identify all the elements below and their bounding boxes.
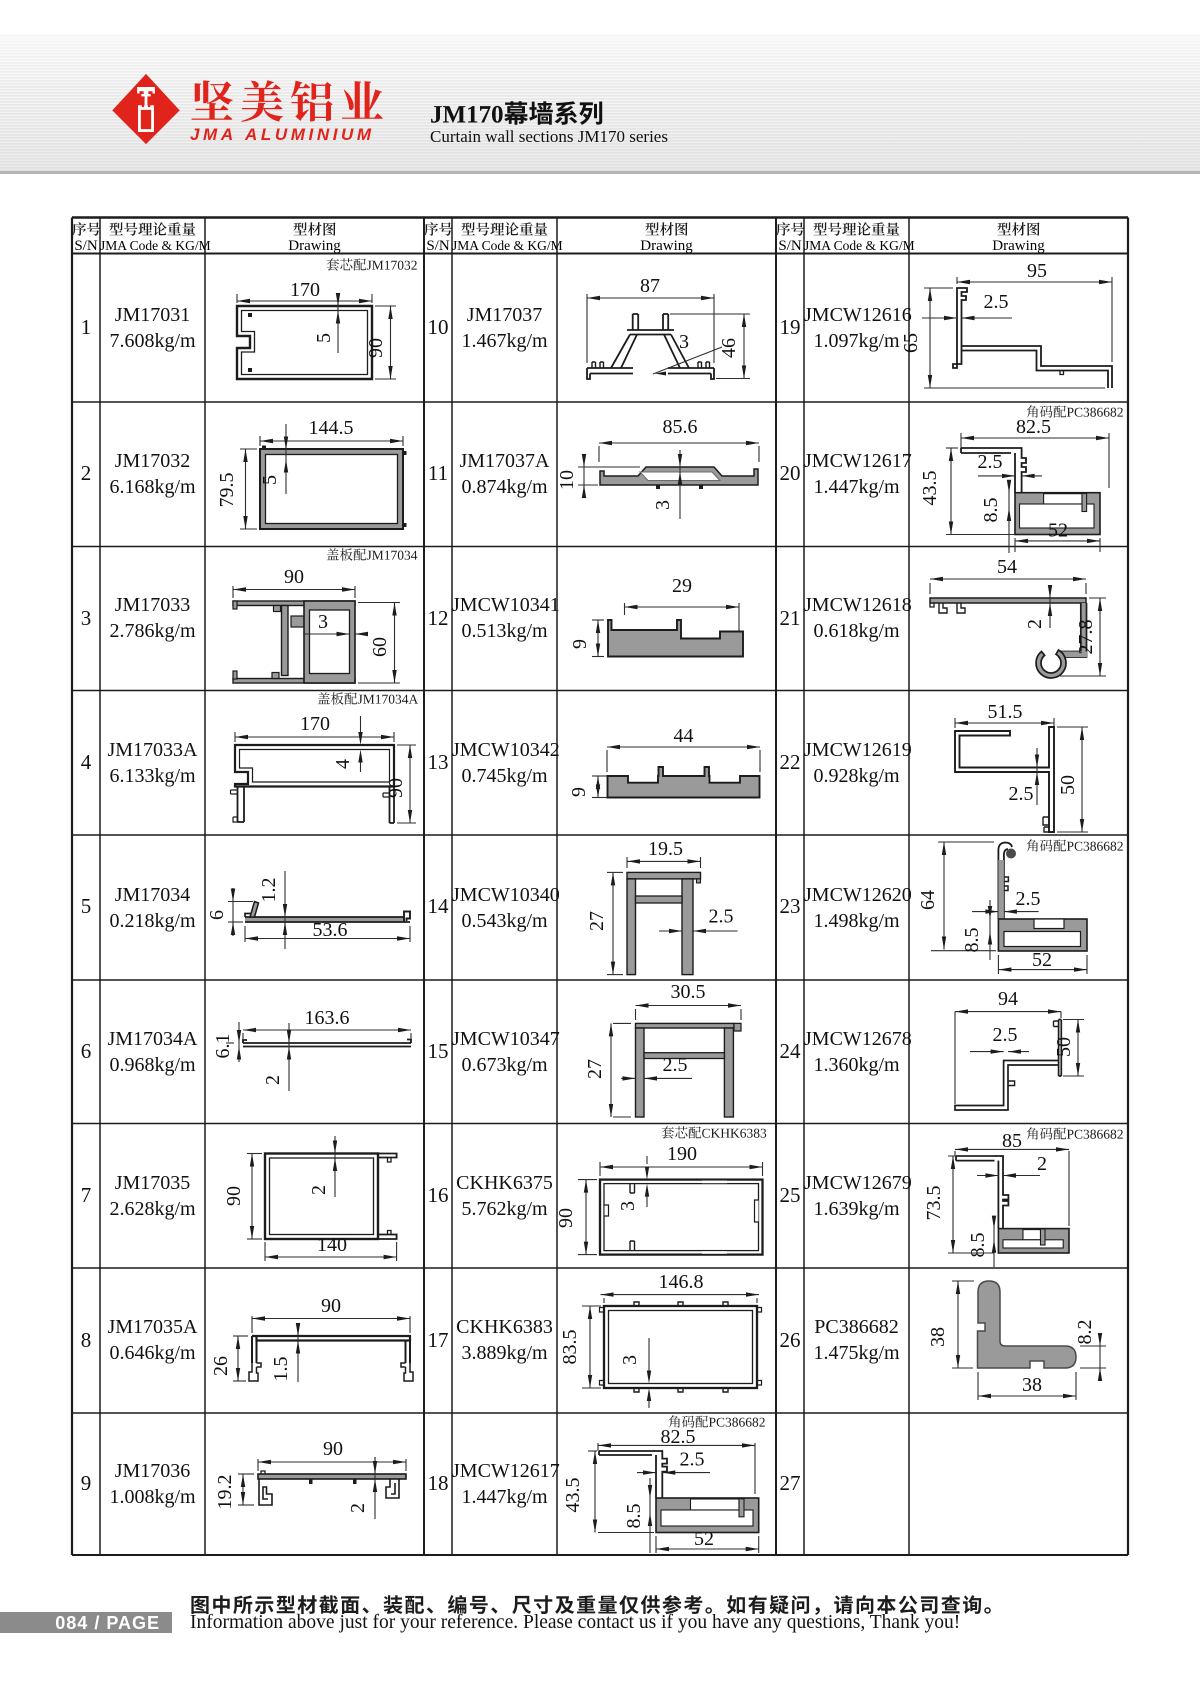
svg-text:8.2: 8.2 [1074,1320,1096,1345]
svg-text:6: 6 [206,910,228,920]
svg-text:90: 90 [365,338,387,358]
svg-text:8.5: 8.5 [967,1233,989,1258]
svg-text:27: 27 [586,911,608,931]
svg-text:170: 170 [290,279,320,301]
svg-text:2.5: 2.5 [1016,888,1041,910]
svg-text:30.5: 30.5 [671,981,706,1003]
svg-text:52: 52 [1032,949,1052,971]
svg-text:5: 5 [313,333,335,343]
svg-text:9: 9 [568,787,590,797]
svg-text:8.5: 8.5 [623,1504,645,1529]
svg-text:2.5: 2.5 [680,1449,705,1471]
svg-text:2: 2 [308,1185,330,1195]
svg-text:2: 2 [347,1503,369,1513]
svg-text:2.5: 2.5 [663,1054,688,1076]
svg-text:3: 3 [617,1201,639,1211]
svg-text:90: 90 [385,778,407,798]
svg-text:2.5: 2.5 [984,291,1009,313]
svg-text:27: 27 [584,1059,606,1079]
svg-text:190: 190 [667,1143,697,1165]
svg-text:83.5: 83.5 [559,1330,581,1365]
svg-text:19.2: 19.2 [214,1475,236,1510]
svg-text:94: 94 [998,988,1018,1010]
svg-text:170: 170 [300,713,330,735]
svg-text:1.2: 1.2 [258,878,280,903]
svg-text:60: 60 [369,637,391,657]
svg-text:65: 65 [900,333,922,353]
svg-text:85: 85 [1002,1130,1022,1152]
svg-text:146.8: 146.8 [659,1271,704,1293]
svg-text:3: 3 [318,611,328,633]
svg-text:144.5: 144.5 [309,417,354,439]
svg-text:90: 90 [284,566,304,588]
svg-text:51.5: 51.5 [988,701,1023,723]
svg-text:2: 2 [1024,619,1046,629]
svg-text:2.5: 2.5 [709,906,734,928]
svg-text:10: 10 [556,470,578,490]
svg-text:38: 38 [927,1327,949,1347]
svg-text:2.5: 2.5 [993,1024,1018,1046]
svg-text:52: 52 [1048,520,1068,542]
svg-text:46: 46 [718,338,740,358]
svg-text:90: 90 [321,1295,341,1317]
svg-text:50: 50 [1057,775,1079,795]
svg-text:2: 2 [1037,1153,1047,1175]
svg-text:64: 64 [917,890,939,910]
svg-text:19.5: 19.5 [648,838,683,860]
svg-text:73.5: 73.5 [923,1186,945,1221]
svg-text:27.8: 27.8 [1075,620,1097,655]
svg-text:3: 3 [652,500,674,510]
svg-text:29: 29 [672,575,692,597]
svg-text:79.5: 79.5 [216,473,238,508]
svg-text:4: 4 [332,759,354,769]
svg-text:140: 140 [317,1234,347,1256]
svg-text:3: 3 [619,1355,641,1365]
svg-text:6.1: 6.1 [212,1034,234,1059]
svg-text:1.5: 1.5 [270,1357,292,1382]
svg-text:3: 3 [679,331,689,353]
svg-text:44: 44 [674,725,694,747]
svg-text:163.6: 163.6 [305,1007,350,1029]
svg-text:50: 50 [1053,1037,1075,1057]
svg-text:8.5: 8.5 [980,498,1002,523]
svg-text:52: 52 [694,1528,714,1550]
svg-text:85.6: 85.6 [663,416,698,438]
svg-text:43.5: 43.5 [562,1478,584,1513]
svg-text:43.5: 43.5 [919,471,941,506]
svg-text:90: 90 [323,1438,343,1460]
svg-text:54: 54 [997,556,1017,578]
svg-text:90: 90 [223,1186,245,1206]
svg-text:87: 87 [640,275,660,297]
svg-text:90: 90 [555,1208,577,1228]
svg-text:26: 26 [210,1356,232,1376]
svg-text:2.5: 2.5 [1009,783,1034,805]
svg-text:38: 38 [1022,1374,1042,1396]
svg-text:5: 5 [259,475,281,485]
svg-text:2: 2 [262,1075,284,1085]
svg-text:9: 9 [569,639,591,649]
svg-text:2.5: 2.5 [978,451,1003,473]
svg-text:95: 95 [1027,260,1047,282]
svg-text:8.5: 8.5 [961,928,983,953]
svg-text:53.6: 53.6 [313,919,348,941]
